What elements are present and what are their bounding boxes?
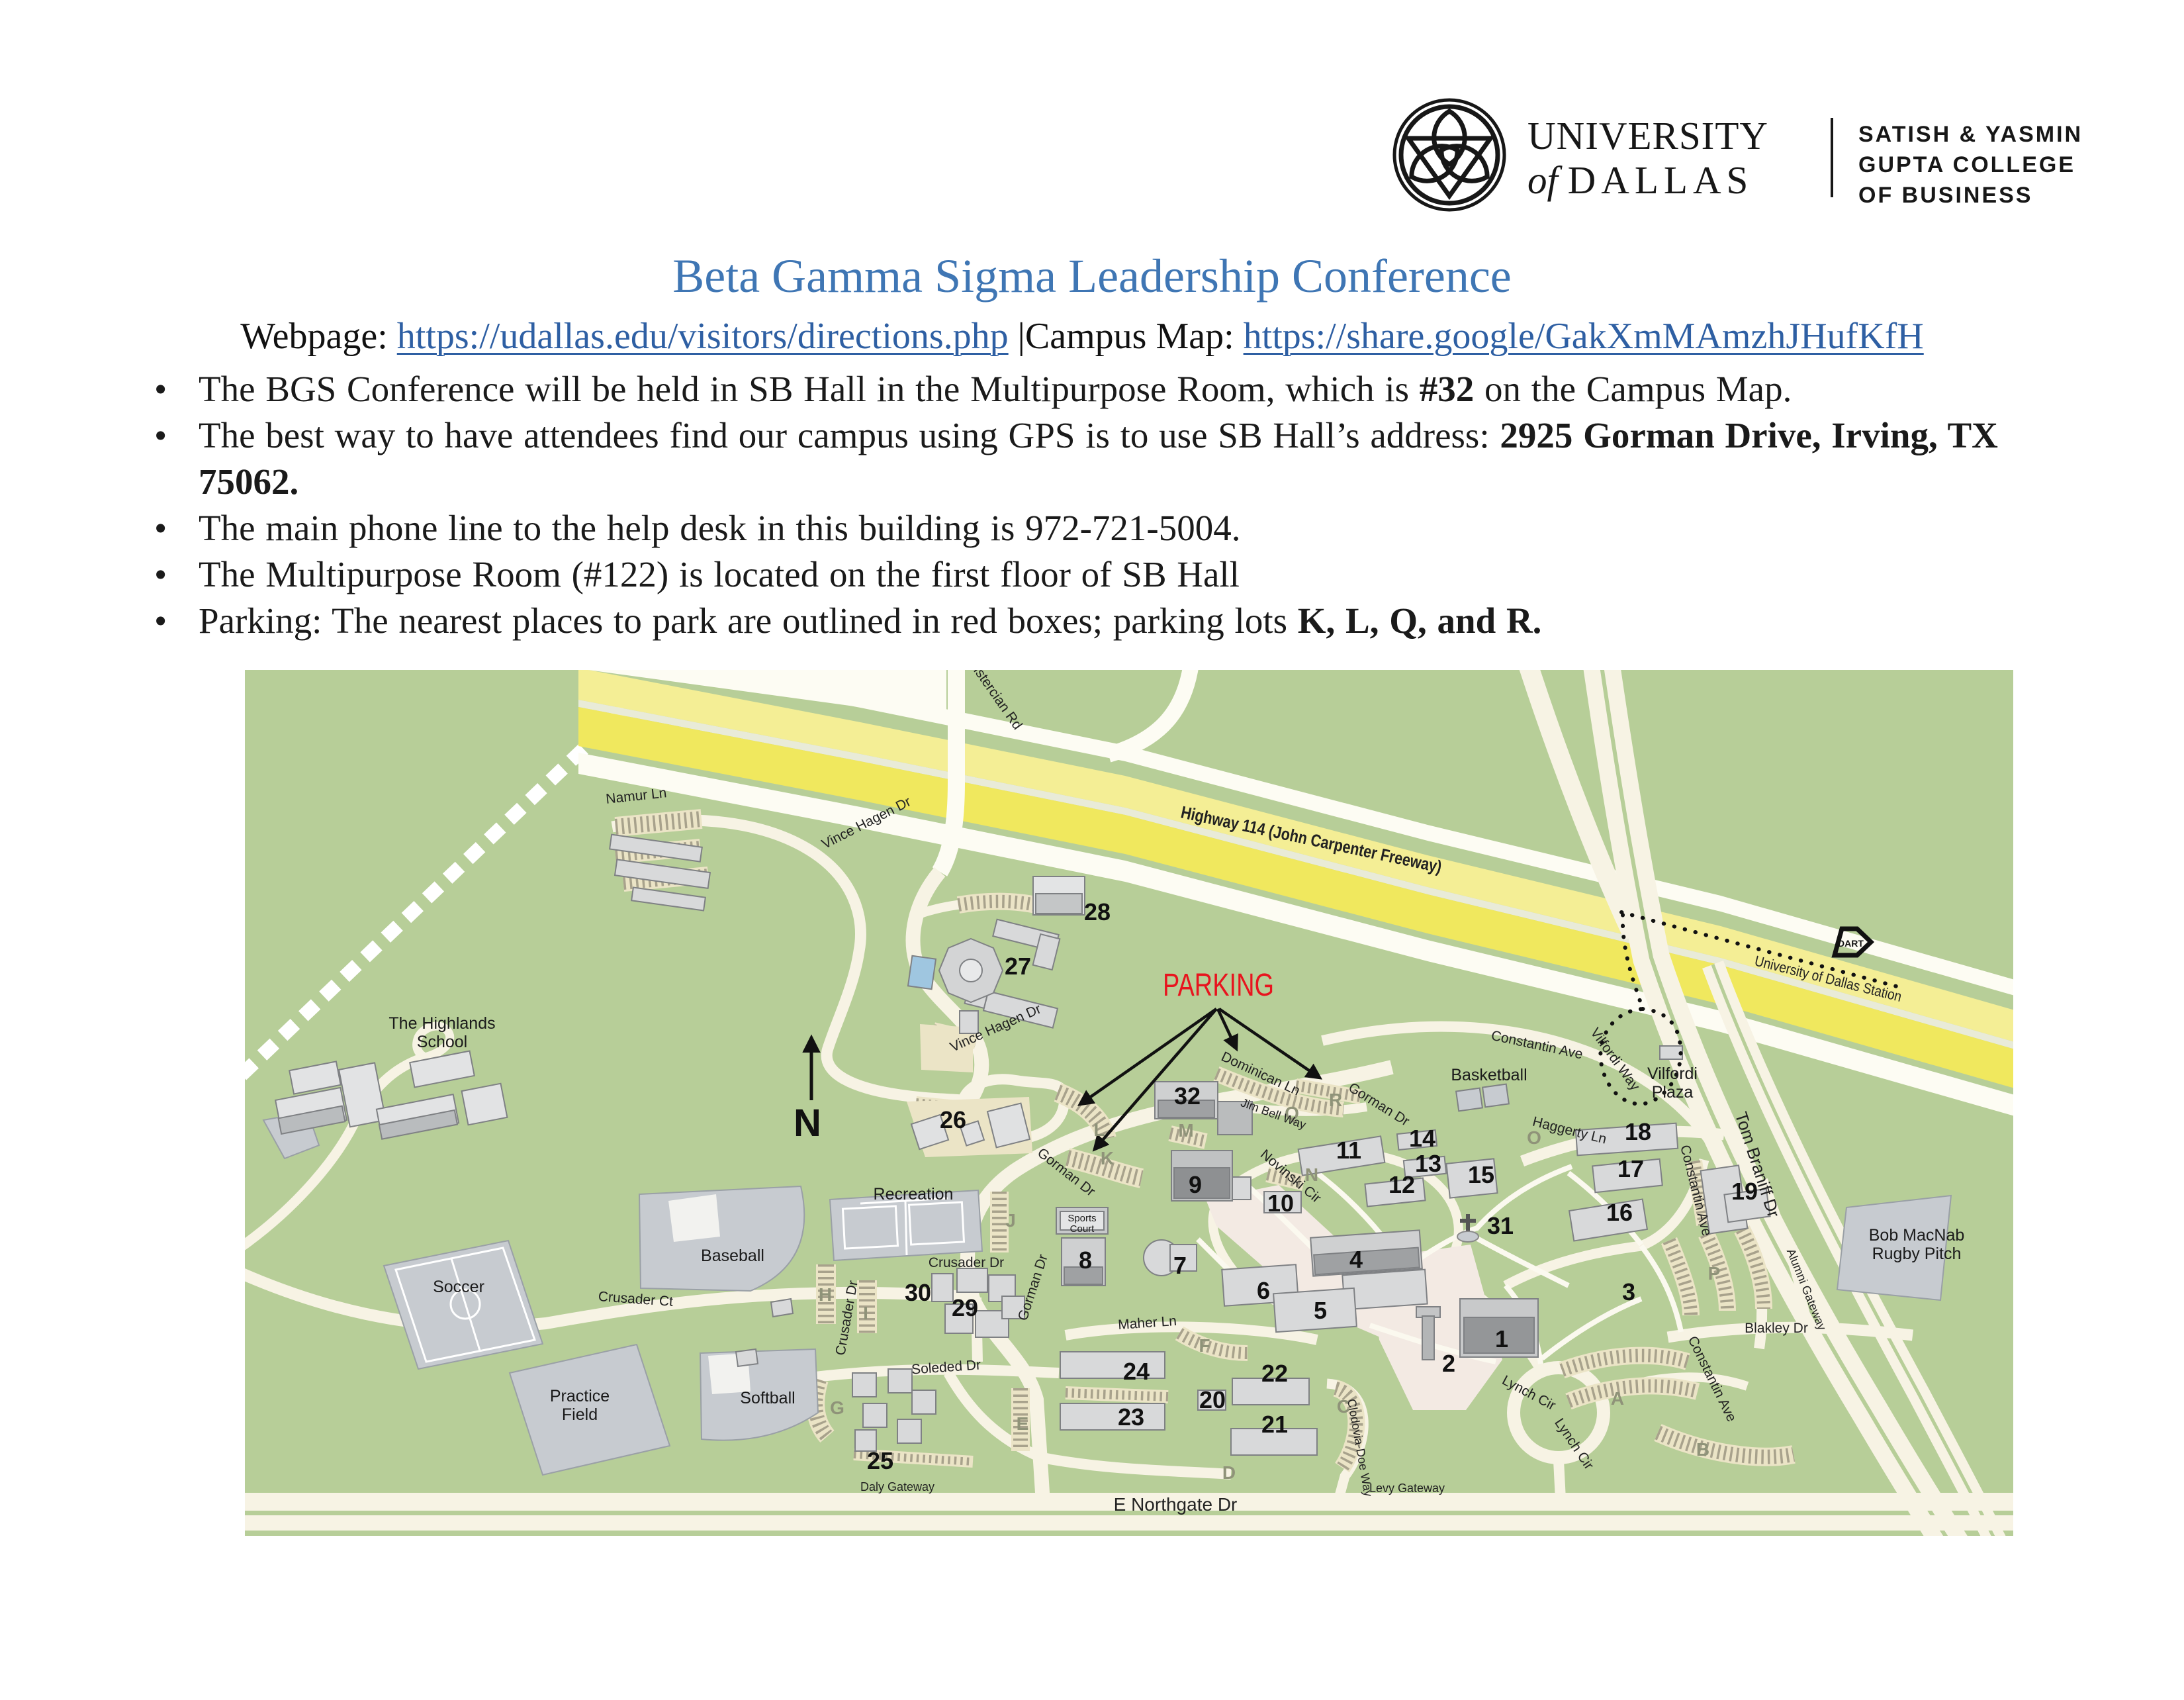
svg-text:9: 9 bbox=[1189, 1171, 1202, 1198]
svg-text:32: 32 bbox=[1174, 1082, 1201, 1110]
svg-text:R: R bbox=[1329, 1090, 1342, 1110]
svg-text:7: 7 bbox=[1173, 1252, 1187, 1279]
svg-text:27: 27 bbox=[1005, 953, 1031, 980]
svg-text:H: H bbox=[819, 1284, 832, 1305]
svg-text:20: 20 bbox=[1199, 1386, 1226, 1413]
svg-text:Baseball: Baseball bbox=[701, 1247, 764, 1265]
svg-text:A: A bbox=[1611, 1388, 1624, 1409]
svg-text:Softball: Softball bbox=[740, 1389, 795, 1407]
svg-text:Practice: Practice bbox=[550, 1387, 610, 1405]
svg-text:Vilfordi: Vilfordi bbox=[1647, 1064, 1698, 1083]
svg-text:Daly Gateway: Daly Gateway bbox=[860, 1480, 934, 1493]
svg-text:5: 5 bbox=[1314, 1297, 1327, 1324]
svg-text:Plaza: Plaza bbox=[1652, 1083, 1694, 1102]
svg-text:E Northgate Dr: E Northgate Dr bbox=[1114, 1494, 1238, 1515]
svg-text:Bob MacNab: Bob MacNab bbox=[1869, 1226, 1965, 1245]
svg-text:The Highlands: The Highlands bbox=[388, 1014, 495, 1033]
svg-text:21: 21 bbox=[1261, 1411, 1288, 1438]
svg-text:Basketball: Basketball bbox=[1451, 1066, 1527, 1084]
svg-text:F: F bbox=[1199, 1335, 1210, 1356]
svg-text:Blakley Dr: Blakley Dr bbox=[1745, 1321, 1808, 1336]
svg-text:24: 24 bbox=[1123, 1358, 1150, 1385]
svg-text:Sports: Sports bbox=[1068, 1213, 1096, 1224]
svg-text:L: L bbox=[1093, 1119, 1105, 1140]
svg-text:10: 10 bbox=[1267, 1190, 1294, 1217]
svg-text:School: School bbox=[417, 1033, 467, 1051]
svg-text:Rugby Pitch: Rugby Pitch bbox=[1872, 1245, 1962, 1263]
svg-text:29: 29 bbox=[952, 1294, 978, 1321]
svg-text:15: 15 bbox=[1468, 1161, 1494, 1188]
svg-text:Field: Field bbox=[562, 1405, 598, 1424]
svg-text:Levy Gateway: Levy Gateway bbox=[1369, 1482, 1445, 1495]
svg-text:22: 22 bbox=[1261, 1360, 1288, 1387]
svg-text:Recreation: Recreation bbox=[874, 1185, 954, 1204]
svg-text:Soccer: Soccer bbox=[433, 1278, 484, 1296]
svg-text:17: 17 bbox=[1617, 1155, 1644, 1182]
svg-text:M: M bbox=[1178, 1120, 1193, 1141]
svg-text:3: 3 bbox=[1622, 1278, 1635, 1305]
svg-text:30: 30 bbox=[905, 1279, 931, 1306]
svg-text:4: 4 bbox=[1349, 1246, 1363, 1273]
svg-text:G: G bbox=[830, 1397, 844, 1418]
svg-text:26: 26 bbox=[940, 1106, 966, 1133]
svg-text:N: N bbox=[794, 1102, 821, 1145]
svg-text:8: 8 bbox=[1079, 1247, 1092, 1274]
svg-text:2: 2 bbox=[1442, 1350, 1455, 1377]
svg-text:31: 31 bbox=[1487, 1212, 1514, 1239]
svg-text:E: E bbox=[1017, 1413, 1029, 1434]
svg-text:25: 25 bbox=[867, 1447, 893, 1474]
svg-text:Crusader Dr: Crusader Dr bbox=[929, 1255, 1004, 1270]
svg-text:K: K bbox=[1101, 1148, 1114, 1168]
svg-text:28: 28 bbox=[1084, 898, 1111, 925]
svg-text:12: 12 bbox=[1388, 1171, 1415, 1198]
svg-text:I: I bbox=[863, 1303, 868, 1323]
svg-text:14: 14 bbox=[1409, 1125, 1435, 1152]
svg-text:18: 18 bbox=[1625, 1118, 1651, 1145]
svg-text:J: J bbox=[1005, 1210, 1016, 1231]
svg-text:13: 13 bbox=[1415, 1150, 1441, 1177]
svg-text:1: 1 bbox=[1495, 1325, 1508, 1352]
svg-text:11: 11 bbox=[1336, 1137, 1361, 1164]
svg-text:B: B bbox=[1696, 1439, 1709, 1460]
svg-text:16: 16 bbox=[1606, 1199, 1633, 1226]
svg-text:D: D bbox=[1222, 1462, 1236, 1483]
svg-text:Court: Court bbox=[1070, 1223, 1095, 1235]
svg-text:23: 23 bbox=[1118, 1403, 1144, 1431]
svg-text:P: P bbox=[1708, 1263, 1721, 1284]
svg-text:PARKING: PARKING bbox=[1163, 968, 1274, 1003]
svg-text:DART: DART bbox=[1838, 938, 1864, 949]
svg-text:6: 6 bbox=[1257, 1277, 1270, 1304]
